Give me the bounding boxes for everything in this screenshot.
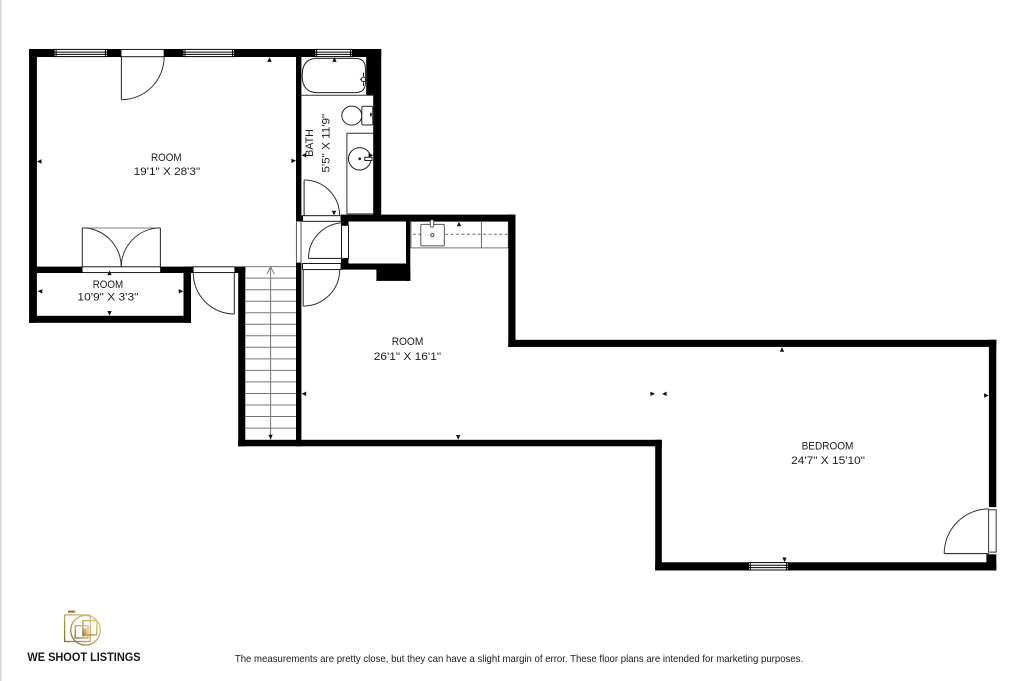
svg-text:26'1" X 16'1": 26'1" X 16'1"	[374, 351, 441, 363]
svg-text:BATH: BATH	[304, 129, 316, 157]
svg-text:ROOM: ROOM	[151, 152, 182, 164]
svg-text:10'9" X 3'3": 10'9" X 3'3"	[77, 292, 138, 304]
svg-text:BEDROOM: BEDROOM	[802, 441, 854, 453]
svg-text:ROOM: ROOM	[392, 336, 424, 348]
svg-text:19'1" X 28'3": 19'1" X 28'3"	[134, 166, 201, 178]
svg-text:5'5" X 11'9": 5'5" X 11'9"	[320, 114, 332, 173]
svg-text:24'7" X 15'10": 24'7" X 15'10"	[791, 455, 865, 467]
svg-text:The measurements are pretty cl: The measurements are pretty close, but t…	[235, 653, 803, 665]
svg-text:WE SHOOT LISTINGS: WE SHOOT LISTINGS	[27, 650, 140, 664]
svg-text:ROOM: ROOM	[93, 279, 123, 291]
